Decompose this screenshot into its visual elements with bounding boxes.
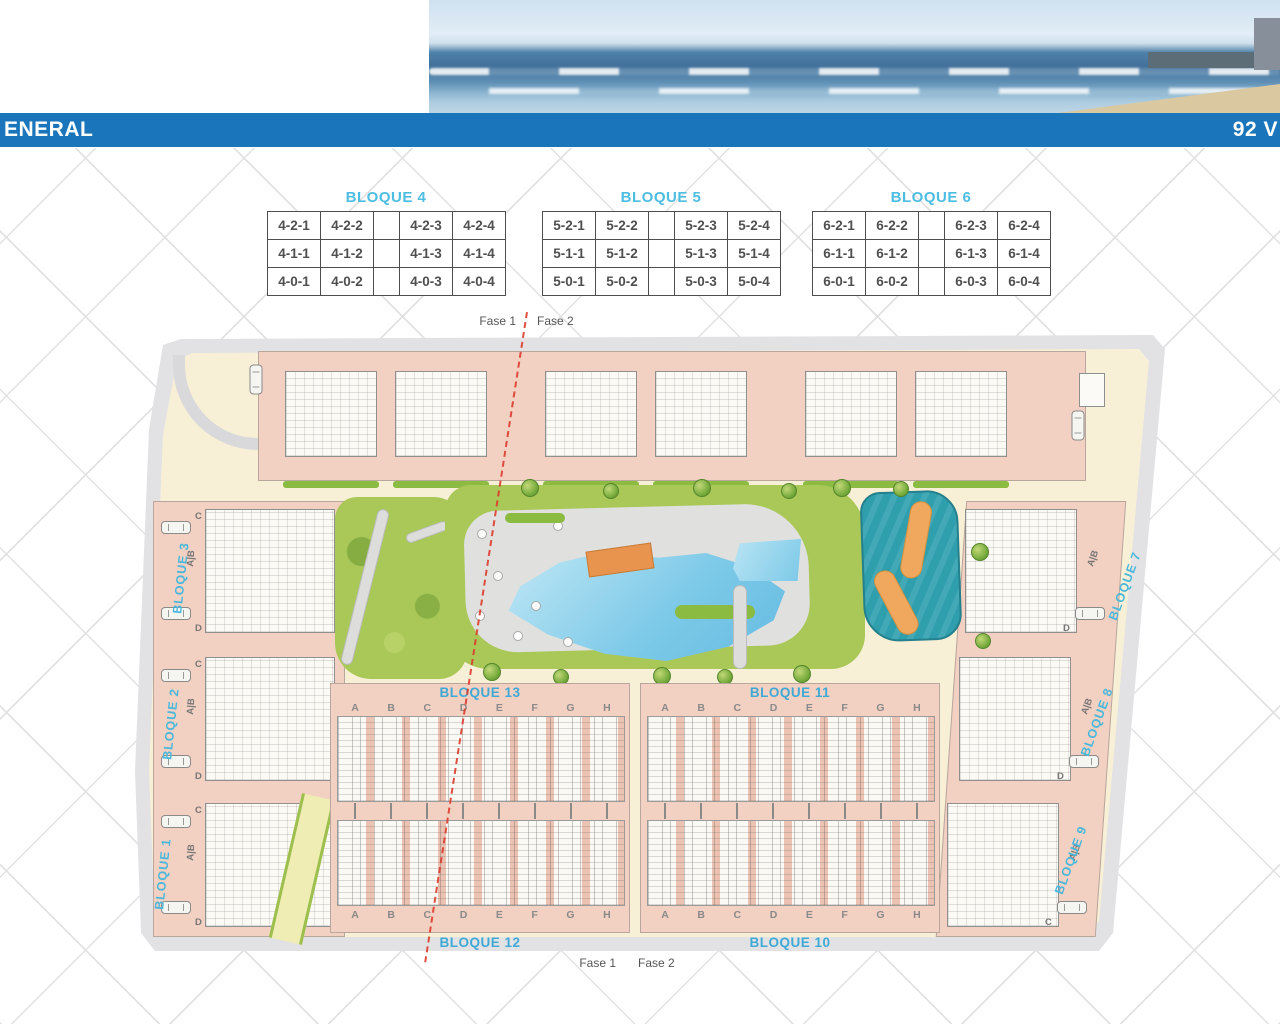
- unit-table-row: 6-1-16-1-26-1-36-1-4: [813, 240, 1051, 268]
- building-floorplan-6a: [805, 371, 897, 457]
- leisure-pool: [859, 489, 962, 642]
- umbrella-icon: [531, 601, 541, 611]
- apartment-floorplan: [965, 509, 1077, 633]
- unit-cell: 4-1-3: [400, 240, 453, 268]
- townhouse-block-13-12: BLOQUE 13 ABCDEFGH ABCDEFGH: [330, 683, 630, 933]
- unit-cell: 4-1-4: [453, 240, 506, 268]
- tree-icon: [793, 665, 811, 683]
- beach-photo: [429, 0, 1280, 114]
- title-bar-background: [0, 113, 1280, 147]
- block-label-bloque13: BLOQUE 13: [331, 685, 629, 700]
- walkway: [733, 585, 747, 669]
- unit-cell: 6-1-3: [945, 240, 998, 268]
- unit-letter: A: [351, 909, 359, 921]
- building-floorplan-5b: [655, 371, 747, 457]
- umbrella-icon: [563, 637, 573, 647]
- phase-label-bottom-right: Fase 2: [638, 956, 702, 970]
- unit-label-c: C: [195, 511, 202, 522]
- unit-cell: 6-2-3: [945, 212, 998, 240]
- unit-table-row: 4-1-14-1-24-1-34-1-4: [268, 240, 506, 268]
- tree-icon: [893, 481, 909, 497]
- unit-cell: 6-2-2: [866, 212, 919, 240]
- unit-label-d: D: [195, 917, 202, 928]
- garden-path: [405, 520, 450, 544]
- apartment-floorplan: [947, 803, 1059, 927]
- unit-cell-empty: [374, 212, 400, 240]
- unit-label-ab: A|B: [185, 844, 197, 861]
- unit-cell: 5-1-4: [728, 240, 781, 268]
- unit-letter: H: [603, 702, 611, 714]
- unit-letters-row: ABCDEFGH: [337, 908, 625, 922]
- umbrella-icon: [493, 571, 503, 581]
- unit-cell: 6-0-4: [998, 268, 1051, 296]
- building-floorplan-4b: [395, 371, 487, 457]
- unit-cell: 6-0-2: [866, 268, 919, 296]
- unit-cell: 6-1-2: [866, 240, 919, 268]
- unit-cell: 5-1-2: [596, 240, 649, 268]
- unit-grid: 6-2-16-2-26-2-36-2-46-1-16-1-26-1-36-1-4…: [812, 211, 1051, 296]
- unit-letter: D: [770, 702, 778, 714]
- phase-label-top-left: Fase 1: [452, 314, 516, 328]
- unit-letter: G: [566, 702, 574, 714]
- unit-table-bloque5: BLOQUE 5 5-2-15-2-25-2-35-2-45-1-15-1-25…: [542, 189, 780, 296]
- unit-cell: 4-2-1: [268, 212, 321, 240]
- car-icon: [250, 365, 263, 395]
- page: ENERAL 92 V BLOQUE 4 4-2-14-2-24-2-34-2-…: [0, 0, 1280, 1024]
- unit-cell: 5-0-2: [596, 268, 649, 296]
- unit-label-d: D: [195, 623, 202, 634]
- unit-cell: 5-2-2: [596, 212, 649, 240]
- unit-label-ab: A|B: [185, 698, 197, 715]
- unit-cell: 5-2-4: [728, 212, 781, 240]
- unit-cell: 4-0-1: [268, 268, 321, 296]
- page-subtitle: 92 V: [1233, 118, 1278, 142]
- car-icon: [161, 669, 191, 682]
- unit-cell-empty: [374, 240, 400, 268]
- unit-cell: 6-0-3: [945, 268, 998, 296]
- block-label-bloque11: BLOQUE 11: [641, 685, 939, 700]
- tree-icon: [603, 483, 619, 499]
- unit-grid: 4-2-14-2-24-2-34-2-44-1-14-1-24-1-34-1-4…: [267, 211, 506, 296]
- car-icon: [1069, 755, 1099, 768]
- unit-cell-empty: [374, 268, 400, 296]
- apartment-cluster-bloque8: A|B D: [945, 649, 1105, 789]
- unit-cell-empty: [919, 268, 945, 296]
- unit-table-bloque4: BLOQUE 4 4-2-14-2-24-2-34-2-44-1-14-1-24…: [267, 189, 505, 296]
- townhouse-row-bloque11: [647, 716, 935, 802]
- unit-cell: 4-2-3: [400, 212, 453, 240]
- unit-table-row: 6-2-16-2-26-2-36-2-4: [813, 212, 1051, 240]
- unit-letter: B: [697, 909, 705, 921]
- unit-cell: 5-2-3: [675, 212, 728, 240]
- utility-structure: [1079, 373, 1105, 407]
- small-pool: [733, 539, 801, 581]
- unit-cell: 4-1-2: [321, 240, 374, 268]
- unit-letter: D: [460, 909, 468, 921]
- car-icon: [1075, 607, 1105, 620]
- townhouse-row-bloque12: [337, 820, 625, 906]
- unit-table-row: 6-0-16-0-26-0-36-0-4: [813, 268, 1051, 296]
- car-icon: [161, 815, 191, 828]
- unit-letter: G: [876, 909, 884, 921]
- unit-letter: E: [496, 909, 503, 921]
- unit-letter: A: [661, 909, 669, 921]
- building-floorplan-4a: [285, 371, 377, 457]
- unit-cell-empty: [649, 268, 675, 296]
- building-floorplan-6b: [915, 371, 1007, 457]
- tree-icon: [483, 663, 501, 681]
- unit-letter: B: [697, 702, 705, 714]
- unit-cell: 6-2-4: [998, 212, 1051, 240]
- townhouse-row-bloque10: [647, 820, 935, 906]
- pier-building: [1254, 18, 1280, 70]
- unit-table-bloque6: BLOQUE 6 6-2-16-2-26-2-36-2-46-1-16-1-26…: [812, 189, 1050, 296]
- unit-cell: 6-1-4: [998, 240, 1051, 268]
- unit-letter: E: [496, 702, 503, 714]
- unit-cell: 5-1-3: [675, 240, 728, 268]
- unit-letter: B: [387, 909, 395, 921]
- townhouse-row-bloque13: [337, 716, 625, 802]
- apartment-floorplan: [205, 509, 335, 633]
- townhouse-block-11-10: BLOQUE 11 ABCDEFGH ABCDEFGH: [640, 683, 940, 933]
- unit-label-d: D: [195, 771, 202, 782]
- tree-icon: [971, 543, 989, 561]
- car-icon: [1057, 901, 1087, 914]
- umbrella-icon: [477, 529, 487, 539]
- unit-letter: F: [531, 909, 537, 921]
- unit-cell-empty: [649, 240, 675, 268]
- page-title: ENERAL: [4, 118, 93, 142]
- unit-label-c: C: [195, 805, 202, 816]
- unit-label-ab: A|B: [1085, 549, 1101, 568]
- unit-letters-row: ABCDEFGH: [647, 908, 935, 922]
- umbrella-icon: [513, 631, 523, 641]
- block-divider: [647, 803, 935, 819]
- unit-table-row: 4-2-14-2-24-2-34-2-4: [268, 212, 506, 240]
- unit-letter: D: [770, 909, 778, 921]
- unit-cell: 6-0-1: [813, 268, 866, 296]
- unit-cell: 4-0-4: [453, 268, 506, 296]
- block-label-bloque12: BLOQUE 12: [330, 935, 630, 950]
- wave-foam: [429, 68, 1280, 75]
- phase-label-bottom-left: Fase 1: [552, 956, 616, 970]
- unit-table-row: 4-0-14-0-24-0-34-0-4: [268, 268, 506, 296]
- hedge: [505, 513, 565, 523]
- block-label-bloque10: BLOQUE 10: [640, 935, 940, 950]
- unit-letter: A: [661, 702, 669, 714]
- unit-letters-row: ABCDEFGH: [337, 701, 625, 715]
- garden-path: [340, 508, 390, 666]
- unit-letter: H: [913, 702, 921, 714]
- car-icon: [161, 521, 191, 534]
- unit-letter: H: [603, 909, 611, 921]
- unit-letter: F: [841, 702, 847, 714]
- unit-cell: 5-0-4: [728, 268, 781, 296]
- unit-cell: 5-0-1: [543, 268, 596, 296]
- apartment-floorplan: [959, 657, 1071, 781]
- unit-cell: 6-2-1: [813, 212, 866, 240]
- unit-letter: G: [566, 909, 574, 921]
- unit-cell-empty: [919, 212, 945, 240]
- unit-cell: 4-2-2: [321, 212, 374, 240]
- unit-letter: B: [387, 702, 395, 714]
- unit-cell: 6-1-1: [813, 240, 866, 268]
- unit-label-d: D: [1057, 771, 1064, 782]
- tree-icon: [833, 479, 851, 497]
- table-title: BLOQUE 6: [812, 189, 1050, 206]
- apartment-cluster-bloque2: A|B C D: [153, 649, 345, 789]
- unit-letter: C: [424, 702, 432, 714]
- unit-label-c: C: [1045, 917, 1052, 928]
- tree-icon: [781, 483, 797, 499]
- unit-cell: 4-0-3: [400, 268, 453, 296]
- building-floorplan-5a: [545, 371, 637, 457]
- apartment-floorplan: [205, 657, 335, 781]
- unit-letter: H: [913, 909, 921, 921]
- unit-letters-row: ABCDEFGH: [647, 701, 935, 715]
- tree-icon: [975, 633, 991, 649]
- table-title: BLOQUE 5: [542, 189, 780, 206]
- unit-cell-empty: [649, 212, 675, 240]
- hedge: [913, 481, 1009, 488]
- car-icon: [1072, 411, 1085, 441]
- tree-icon: [693, 479, 711, 497]
- unit-table-row: 5-0-15-0-25-0-35-0-4: [543, 268, 781, 296]
- unit-cell: 5-0-3: [675, 268, 728, 296]
- pool-path: [898, 499, 933, 580]
- unit-cell: 4-1-1: [268, 240, 321, 268]
- unit-label-d: D: [1063, 623, 1070, 634]
- unit-cell: 5-2-1: [543, 212, 596, 240]
- unit-cell: 4-2-4: [453, 212, 506, 240]
- unit-letter: G: [876, 702, 884, 714]
- wave-foam: [489, 88, 1255, 94]
- hedge: [283, 481, 379, 488]
- unit-cell: 4-0-2: [321, 268, 374, 296]
- unit-cell: 5-1-1: [543, 240, 596, 268]
- unit-letter: F: [841, 909, 847, 921]
- title-bar: ENERAL 92 V: [0, 113, 1280, 147]
- unit-letter: A: [351, 702, 359, 714]
- unit-letter: F: [531, 702, 537, 714]
- unit-table-row: 5-1-15-1-25-1-35-1-4: [543, 240, 781, 268]
- unit-letter: E: [806, 909, 813, 921]
- unit-letter: C: [734, 702, 742, 714]
- unit-cell-empty: [919, 240, 945, 268]
- phase-label-top-right: Fase 2: [537, 314, 601, 328]
- site-plan: A|B C D A|B C D A|B C D A|B D: [133, 333, 1167, 957]
- unit-label-c: C: [195, 659, 202, 670]
- unit-grid: 5-2-15-2-25-2-35-2-45-1-15-1-25-1-35-1-4…: [542, 211, 781, 296]
- unit-letter: C: [734, 909, 742, 921]
- tree-icon: [521, 479, 539, 497]
- table-title: BLOQUE 4: [267, 189, 505, 206]
- pool-garden: [445, 485, 865, 669]
- apartment-cluster-bloque7: A|B D: [951, 501, 1111, 641]
- unit-table-row: 5-2-15-2-25-2-35-2-4: [543, 212, 781, 240]
- block-divider: [337, 803, 625, 819]
- unit-letter: E: [806, 702, 813, 714]
